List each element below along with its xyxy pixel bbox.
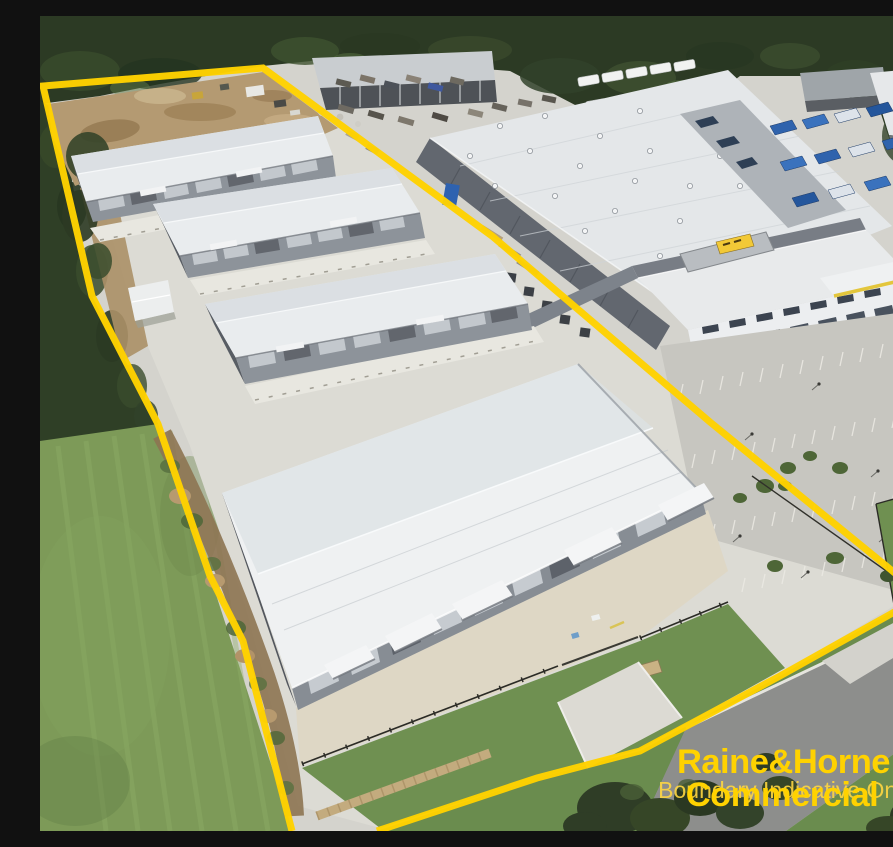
aerial-photo-canvas: Boundary Indicative Only Raine&Horne ® C…	[40, 16, 893, 831]
brand-logo: Raine&Horne ® Commercial	[677, 743, 893, 814]
aerial-photo: Boundary Indicative Only Raine&Horne ® C…	[40, 16, 893, 831]
brand-division-text: Commercial	[686, 776, 879, 814]
